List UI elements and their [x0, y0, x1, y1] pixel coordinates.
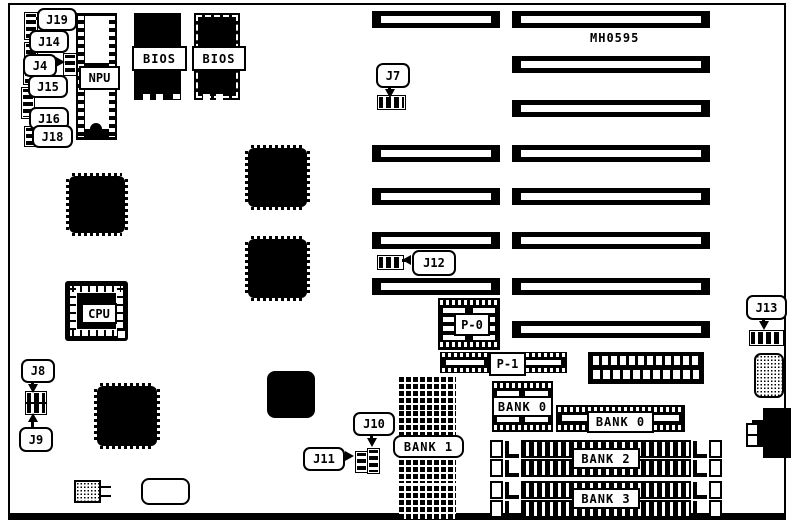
- chip-pins: [157, 389, 160, 443]
- j13-label: J13: [746, 295, 787, 320]
- crystal-lead: [101, 486, 111, 488]
- bank3-label: BANK 3: [572, 488, 640, 509]
- chip-pins: [307, 151, 310, 204]
- expansion-slot: [372, 232, 500, 249]
- bank1-dram-block: [399, 377, 456, 410]
- simm-end-bracket: [490, 459, 503, 477]
- chip-body: [248, 148, 307, 207]
- chip-body: [69, 176, 125, 233]
- chip-qfp-bottom-left: [94, 383, 160, 449]
- j11-label: J11: [303, 447, 345, 471]
- j4-label: J4: [23, 54, 57, 77]
- chip-pins: [125, 179, 128, 230]
- bank0-slot: [497, 417, 519, 422]
- j12-label: J12: [412, 250, 456, 276]
- chip-pins: [251, 207, 304, 210]
- expansion-slot: [512, 232, 710, 249]
- j9-connector-icon: [25, 402, 47, 415]
- cpu-label: CPU: [81, 303, 117, 324]
- bank0-pins: [494, 425, 551, 430]
- j7-label: J7: [376, 63, 410, 88]
- motherboard-diagram: MH0595 J19 J14 J4 J15 J16 J18 NPU BIOS B…: [0, 0, 791, 527]
- cpu-socket-pins: [70, 288, 76, 334]
- bios1-notch: [143, 94, 150, 100]
- bios1-label: BIOS: [132, 46, 187, 71]
- p1-slot: [446, 360, 484, 365]
- expansion-slot: [512, 145, 710, 162]
- npu-window-top: [85, 16, 109, 63]
- crystal: [74, 480, 101, 503]
- npu-label: NPU: [79, 66, 120, 90]
- j13-connector-icon: [749, 330, 784, 346]
- chip-pins: [100, 446, 154, 449]
- simm-latch-icon: [693, 482, 707, 499]
- expansion-slot: [512, 278, 710, 295]
- cpu-corner-notch: [117, 330, 126, 339]
- expansion-slot: [512, 56, 710, 73]
- expansion-slot: [372, 188, 500, 205]
- j13-pointer: [759, 321, 769, 330]
- bank2-label: BANK 2: [572, 448, 640, 469]
- keyboard-pad: [746, 434, 759, 447]
- simm-end-bracket: [490, 440, 503, 458]
- chip-pins: [251, 298, 304, 301]
- expansion-slot: [512, 321, 710, 338]
- chip-body: [248, 239, 307, 298]
- j14-label: J14: [29, 30, 69, 53]
- crystal-lead: [101, 495, 111, 497]
- header-strip-holes: [593, 370, 699, 379]
- part-number-text: MH0595: [590, 31, 639, 45]
- chip-qfp-middle-bottom: [245, 236, 310, 301]
- simm-end-bracket: [490, 481, 503, 499]
- simm-latch-icon: [505, 441, 519, 458]
- expansion-slot: [512, 188, 710, 205]
- j10-connector-icon: [367, 448, 380, 474]
- expansion-slot: [512, 100, 710, 117]
- j7-connector-icon: [377, 95, 406, 110]
- simm-latch-icon: [505, 482, 519, 499]
- simm-end-bracket: [709, 500, 722, 518]
- oscillator-outline: [141, 478, 190, 505]
- header-strip-pads: [593, 356, 699, 365]
- simm-latch-icon: [693, 441, 707, 458]
- j9-label: J9: [19, 427, 53, 452]
- simm-latch-icon: [505, 460, 519, 477]
- header-strip-connector: [588, 352, 704, 384]
- j10-label: J10: [353, 412, 395, 436]
- simm-latch-icon: [693, 460, 707, 477]
- j11-pointer: [345, 451, 354, 461]
- bank1-label: BANK 1: [393, 435, 464, 458]
- p0-pins: [440, 300, 498, 305]
- bios2-label: BIOS: [192, 46, 246, 71]
- j18-label: J18: [32, 125, 73, 148]
- bank0-pins: [494, 383, 551, 388]
- simm-latch-icon: [693, 501, 707, 518]
- cpu-socket-pins: [72, 286, 121, 292]
- chip-plcc: [267, 371, 315, 418]
- simm-end-bracket: [709, 459, 722, 477]
- simm-end-bracket: [490, 500, 503, 518]
- chip-qfp-middle-top: [245, 145, 310, 210]
- simm-end-bracket: [709, 481, 722, 499]
- bank1-dram-block: [399, 486, 456, 519]
- j4-connector-icon: [63, 53, 77, 76]
- npu-orientation-notch: [90, 123, 102, 129]
- bios1-corner-notch: [173, 94, 180, 99]
- cpu-socket-pins: [117, 288, 123, 334]
- expansion-slot: [372, 278, 500, 295]
- p1-slot: [522, 360, 561, 365]
- simm-end-bracket: [709, 440, 722, 458]
- chip-pins: [307, 242, 310, 295]
- p1-label: P-1: [489, 352, 526, 376]
- bank0a-label: BANK 0: [492, 396, 553, 417]
- bank0b-label: BANK 0: [587, 411, 654, 433]
- expansion-slot: [512, 11, 710, 28]
- j12-connector-icon: [377, 255, 404, 270]
- cpu-socket-pins: [72, 330, 121, 336]
- j11-connector-icon: [355, 451, 368, 473]
- expansion-slot: [372, 11, 500, 28]
- bios2-notch: [216, 94, 223, 100]
- simm-latch-icon: [505, 501, 519, 518]
- j10-pointer: [367, 438, 377, 447]
- chip-body: [97, 386, 157, 446]
- right-edge-connector: [754, 353, 784, 398]
- bios2-notch: [203, 94, 210, 100]
- bank0-slot: [525, 417, 548, 422]
- p0-pins: [440, 342, 498, 347]
- j19-label: J19: [37, 8, 77, 31]
- p0-label: P-0: [454, 313, 490, 336]
- expansion-slot: [372, 145, 500, 162]
- j8-label: J8: [21, 359, 55, 383]
- j15-label: J15: [28, 75, 68, 98]
- keyboard-connector: [763, 408, 791, 458]
- chip-qfp-left: [66, 173, 128, 236]
- bios1-notch: [156, 94, 163, 100]
- chip-pins: [72, 233, 122, 236]
